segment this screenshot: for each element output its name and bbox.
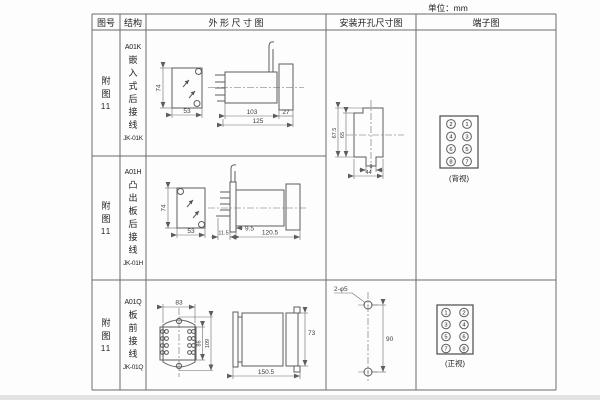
fig-no-text: 附图: [102, 75, 111, 101]
terminal-circles: 2 1 4 3 6 5 8 7: [447, 120, 472, 166]
model-label: A01H: [125, 169, 142, 176]
header-cell-structure: 结构: [120, 14, 146, 30]
terminal-number: 2: [449, 122, 452, 128]
mounting-flange: [230, 182, 236, 232]
side-view: 73 150.5: [233, 307, 316, 379]
terminal-diagram-front: 1 2 3 4 5 6 7 8 (正视): [416, 280, 556, 390]
structure-cell-row3: A01Q 板前接线 JK-01Q: [120, 280, 146, 390]
terminal-number: 4: [449, 135, 453, 141]
dim-label-hole-spacing: 90: [386, 336, 394, 343]
header-cell-fig-no: 图号: [92, 14, 120, 30]
model-label: A01K: [125, 44, 141, 51]
side-view: 103 27 125: [208, 42, 304, 127]
dim-label-depth: 120.5: [262, 230, 279, 237]
dim-label-width: 83: [175, 300, 183, 307]
terminal-number: 6: [462, 335, 465, 341]
corner-hole-icon: [199, 222, 205, 228]
structure-label: 板前接线: [129, 309, 138, 361]
fig-no-text: 附图: [102, 200, 111, 226]
terminal-number: 1: [444, 311, 447, 317]
model-label: A01Q: [124, 299, 141, 306]
dim-label-outer-height: 67.5: [332, 128, 338, 139]
terminal-number: 7: [465, 160, 468, 166]
corner-hole-icon: [196, 69, 202, 75]
outline-diagram-jk01k: 74 53 103 27 125: [146, 30, 324, 156]
terminal-number: 6: [449, 147, 452, 153]
terminal-number: 3: [465, 135, 468, 141]
dim-label-cutout-width: 44: [365, 170, 371, 176]
code-label: JK-01Q: [123, 364, 143, 371]
structure-cell-row2: A01H 凸出板后接线 JK-01H: [120, 156, 146, 280]
mounting-cutout-diagram: 67.5 65 9 44: [326, 30, 416, 280]
page-edge-shadow: [0, 395, 600, 400]
fig-no-number: 11: [101, 227, 111, 236]
dim-label-total: 125: [253, 118, 264, 125]
front-view: 74 53: [161, 188, 206, 238]
header-cell-mounting: 安装开孔尺寸图: [326, 14, 416, 30]
dim-label-height: 73: [308, 330, 316, 337]
corner-hole-icon: [194, 101, 200, 107]
dim-label-body: 103: [247, 109, 258, 116]
panel-cutout: [354, 108, 383, 166]
structure-label: 嵌入式后接线: [129, 54, 138, 132]
mounting-flange: [233, 312, 238, 367]
dim-label-width: 53: [187, 228, 195, 235]
code-label: JK-01K: [123, 135, 143, 142]
manual-page: 单位：mm 图号 结构 外 形 尺 寸 图 安装开孔尺寸图 端子图 附图 11 …: [0, 0, 600, 400]
dim-label-inner-height: 65: [340, 132, 346, 138]
dim-label-height: 74: [156, 84, 163, 92]
code-label: JK-01H: [123, 260, 143, 267]
outline-diagram-jk01h: 74 53 9.5 11.5: [146, 156, 324, 280]
dim-label-hole-diameter: 2-φ5: [334, 286, 348, 293]
fig-no-cell-row1: 附图 11: [92, 30, 120, 156]
terminal-number: 5: [444, 335, 447, 341]
fig-no-cell-row3: 附图 11: [92, 280, 120, 390]
structure-cell-row1: A01K 嵌入式后接线 JK-01K: [120, 30, 146, 156]
terminal-number: 3: [444, 323, 447, 329]
dim-label-rear: 27: [282, 109, 290, 116]
terminal-number: 8: [462, 347, 465, 353]
terminal-number: 7: [444, 347, 447, 353]
terminal-number: 5: [465, 147, 468, 153]
dim-label-inner-height: 86: [197, 340, 203, 346]
fig-no-cell-row2: 附图 11: [92, 156, 120, 280]
terminal-number: 1: [465, 122, 468, 128]
indicator-mark: [183, 80, 195, 98]
dim-label-proj: 9.5: [245, 226, 254, 233]
dim-label-depth: 150.5: [258, 369, 275, 376]
mounting-holes-diagram: 90 2-φ5: [326, 280, 416, 390]
header-cell-outline: 外 形 尺 寸 图: [146, 14, 326, 30]
dim-label-outer-height: 109: [205, 339, 211, 348]
fig-no-number: 11: [101, 344, 111, 353]
terminal-stack: [161, 330, 196, 355]
structure-label: 凸出板后接线: [129, 179, 138, 257]
dim-label-front: 11.5: [218, 231, 228, 237]
terminal-number: 8: [449, 160, 452, 166]
dim-label-height: 74: [161, 204, 168, 212]
header-cell-terminal: 端子图: [416, 14, 556, 30]
fig-no-text: 附图: [102, 317, 111, 343]
terminal-diagram-rear: 2 1 4 3 6 5 8 7 (背视): [416, 30, 556, 280]
front-view: 83 86 109: [160, 300, 213, 378]
indicator-mark: [187, 200, 199, 218]
front-view: 74 53: [156, 68, 203, 118]
dim-label-width: 53: [183, 108, 191, 115]
corner-hole-icon: [178, 189, 184, 195]
fig-no-number: 11: [101, 102, 111, 111]
view-caption: (正视): [445, 358, 465, 368]
view-caption: (背视): [449, 173, 469, 183]
terminal-circles: 1 2 3 4 5 6 7 8: [442, 308, 469, 353]
side-view: 9.5 11.5 120.5: [208, 165, 306, 240]
outline-diagram-jk01q: 83 86 109 73 150.5: [146, 280, 324, 390]
terminal-number: 2: [462, 311, 465, 317]
terminal-number: 4: [462, 323, 466, 329]
